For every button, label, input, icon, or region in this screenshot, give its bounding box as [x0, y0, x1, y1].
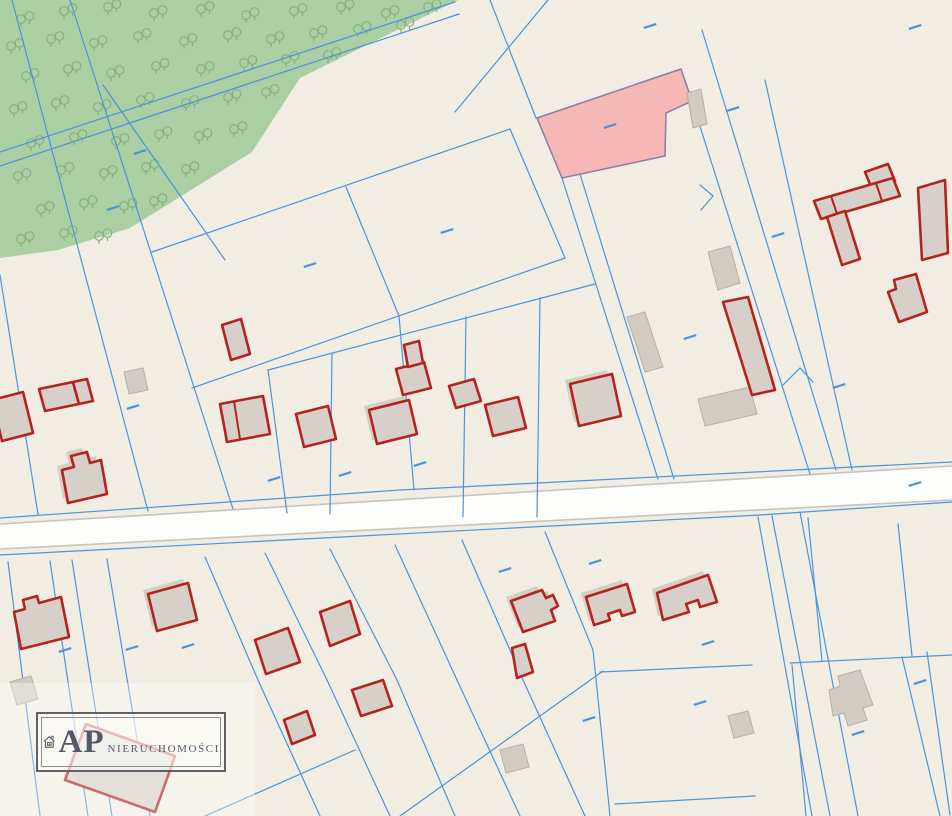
building-outline [570, 374, 621, 426]
cadastral-map-viewport: AP NIERUCHOMOŚCI [0, 0, 952, 816]
watermark-brand-name: NIERUCHOMOŚCI [108, 743, 220, 755]
watermark-logo: AP NIERUCHOMOŚCI [36, 712, 226, 772]
building-outline [296, 406, 336, 447]
map-canvas[interactable] [0, 0, 952, 816]
watermark-inner-frame: AP NIERUCHOMOŚCI [41, 717, 221, 767]
building-footprint-gray [500, 744, 529, 773]
house-icon [42, 727, 57, 757]
building-outline [918, 180, 948, 260]
watermark-initials: AP [59, 726, 105, 759]
building-outline [404, 341, 423, 367]
building-outline [449, 379, 481, 408]
building-outline [396, 362, 431, 395]
building-outline [485, 397, 526, 436]
building-outline [220, 396, 270, 442]
